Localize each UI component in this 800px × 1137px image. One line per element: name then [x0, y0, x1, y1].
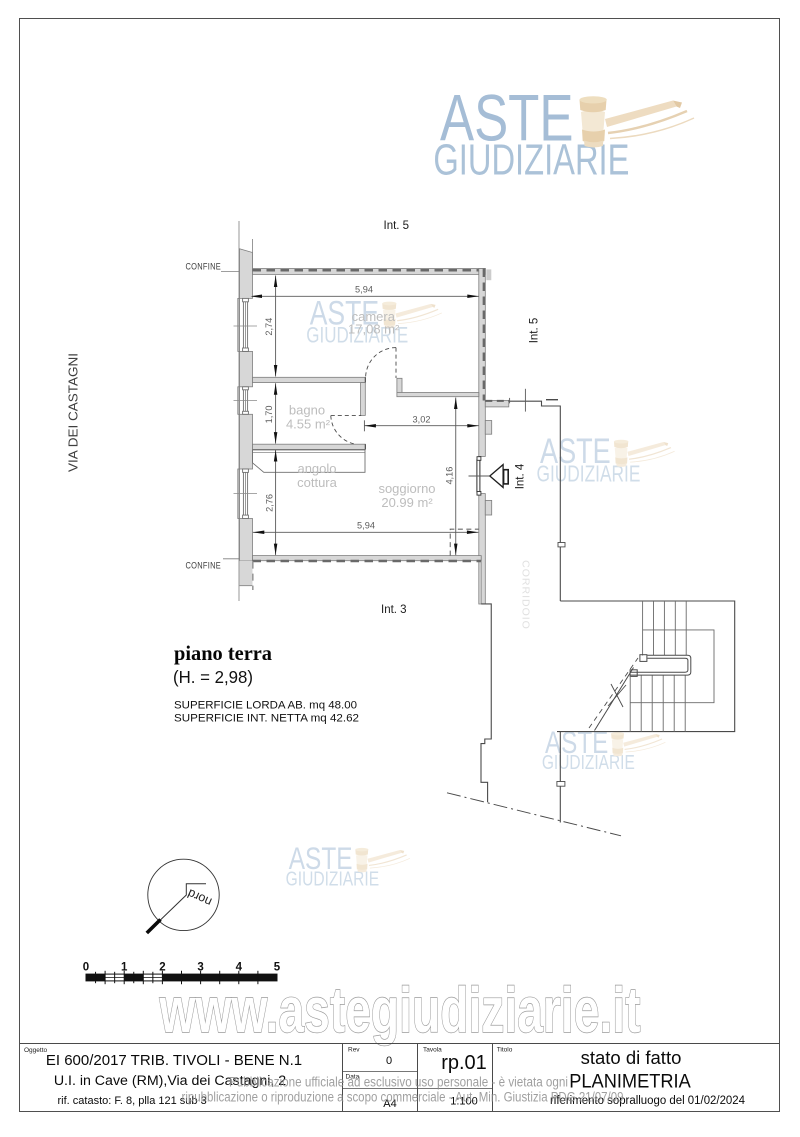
- svg-text:Int. 5: Int. 5: [384, 220, 410, 232]
- svg-text:1,70: 1,70: [264, 405, 274, 423]
- svg-text:soggiorno: soggiorno: [378, 481, 435, 496]
- svg-text:CORRIDOIO: CORRIDOIO: [520, 560, 532, 630]
- svg-text:piano terra: piano terra: [174, 641, 272, 665]
- svg-text:SUPERFICIE INT. NETTA mq 42: SUPERFICIE INT. NETTA mq 42.62: [174, 712, 359, 724]
- svg-text:VIA DEI CASTAGNI: VIA DEI CASTAGNI: [65, 353, 80, 472]
- svg-text:stato di fatto: stato di fatto: [581, 1047, 682, 1068]
- svg-text:bagno: bagno: [289, 403, 325, 418]
- svg-text:Int. 5: Int. 5: [529, 318, 541, 344]
- svg-text:Rev: Rev: [348, 1047, 360, 1054]
- svg-text:EI 600/2017 TRIB. TIVOLI - BEN: EI 600/2017 TRIB. TIVOLI - BENE N.1: [46, 1052, 302, 1069]
- svg-text:5: 5: [274, 962, 281, 974]
- svg-text:CONFINE: CONFINE: [186, 561, 222, 572]
- svg-text:17,08 m²: 17,08 m²: [348, 322, 400, 337]
- svg-text:4,16: 4,16: [445, 467, 455, 485]
- svg-text:5,94: 5,94: [355, 285, 373, 295]
- svg-text:cottura: cottura: [297, 475, 338, 490]
- svg-text:0: 0: [83, 962, 89, 974]
- svg-text:www.astegiudiziarie.it: www.astegiudiziarie.it: [159, 974, 641, 1046]
- svg-text:Pubblicazione ufficiale ad esc: Pubblicazione ufficiale ad esclusivo uso…: [229, 1075, 568, 1090]
- svg-text:Titolo: Titolo: [497, 1047, 513, 1054]
- svg-text:2,76: 2,76: [264, 494, 274, 512]
- svg-text:Oggetto: Oggetto: [24, 1047, 48, 1054]
- svg-text:(H. = 2,98): (H. = 2,98): [173, 667, 253, 687]
- svg-text:20.99 m²: 20.99 m²: [381, 495, 433, 510]
- svg-text:ripubblicazione o riproduzione: ripubblicazione o riproduzione a scopo c…: [182, 1090, 624, 1105]
- svg-text:Tavola: Tavola: [423, 1047, 442, 1054]
- svg-text:5,94: 5,94: [357, 521, 375, 531]
- svg-text:SUPERFICIE LORDA AB. mq 48.00: SUPERFICIE LORDA AB. mq 48.00: [174, 700, 357, 712]
- svg-text:0: 0: [386, 1055, 392, 1067]
- svg-text:CONFINE: CONFINE: [186, 262, 222, 273]
- svg-text:angolo: angolo: [297, 461, 336, 476]
- svg-text:4.55 m²: 4.55 m²: [286, 417, 331, 432]
- svg-text:rp.01: rp.01: [441, 1052, 487, 1074]
- svg-text:Int. 4: Int. 4: [515, 463, 527, 489]
- svg-text:3,02: 3,02: [413, 414, 431, 424]
- svg-text:Int. 3: Int. 3: [381, 604, 407, 616]
- svg-text:2,74: 2,74: [264, 318, 274, 336]
